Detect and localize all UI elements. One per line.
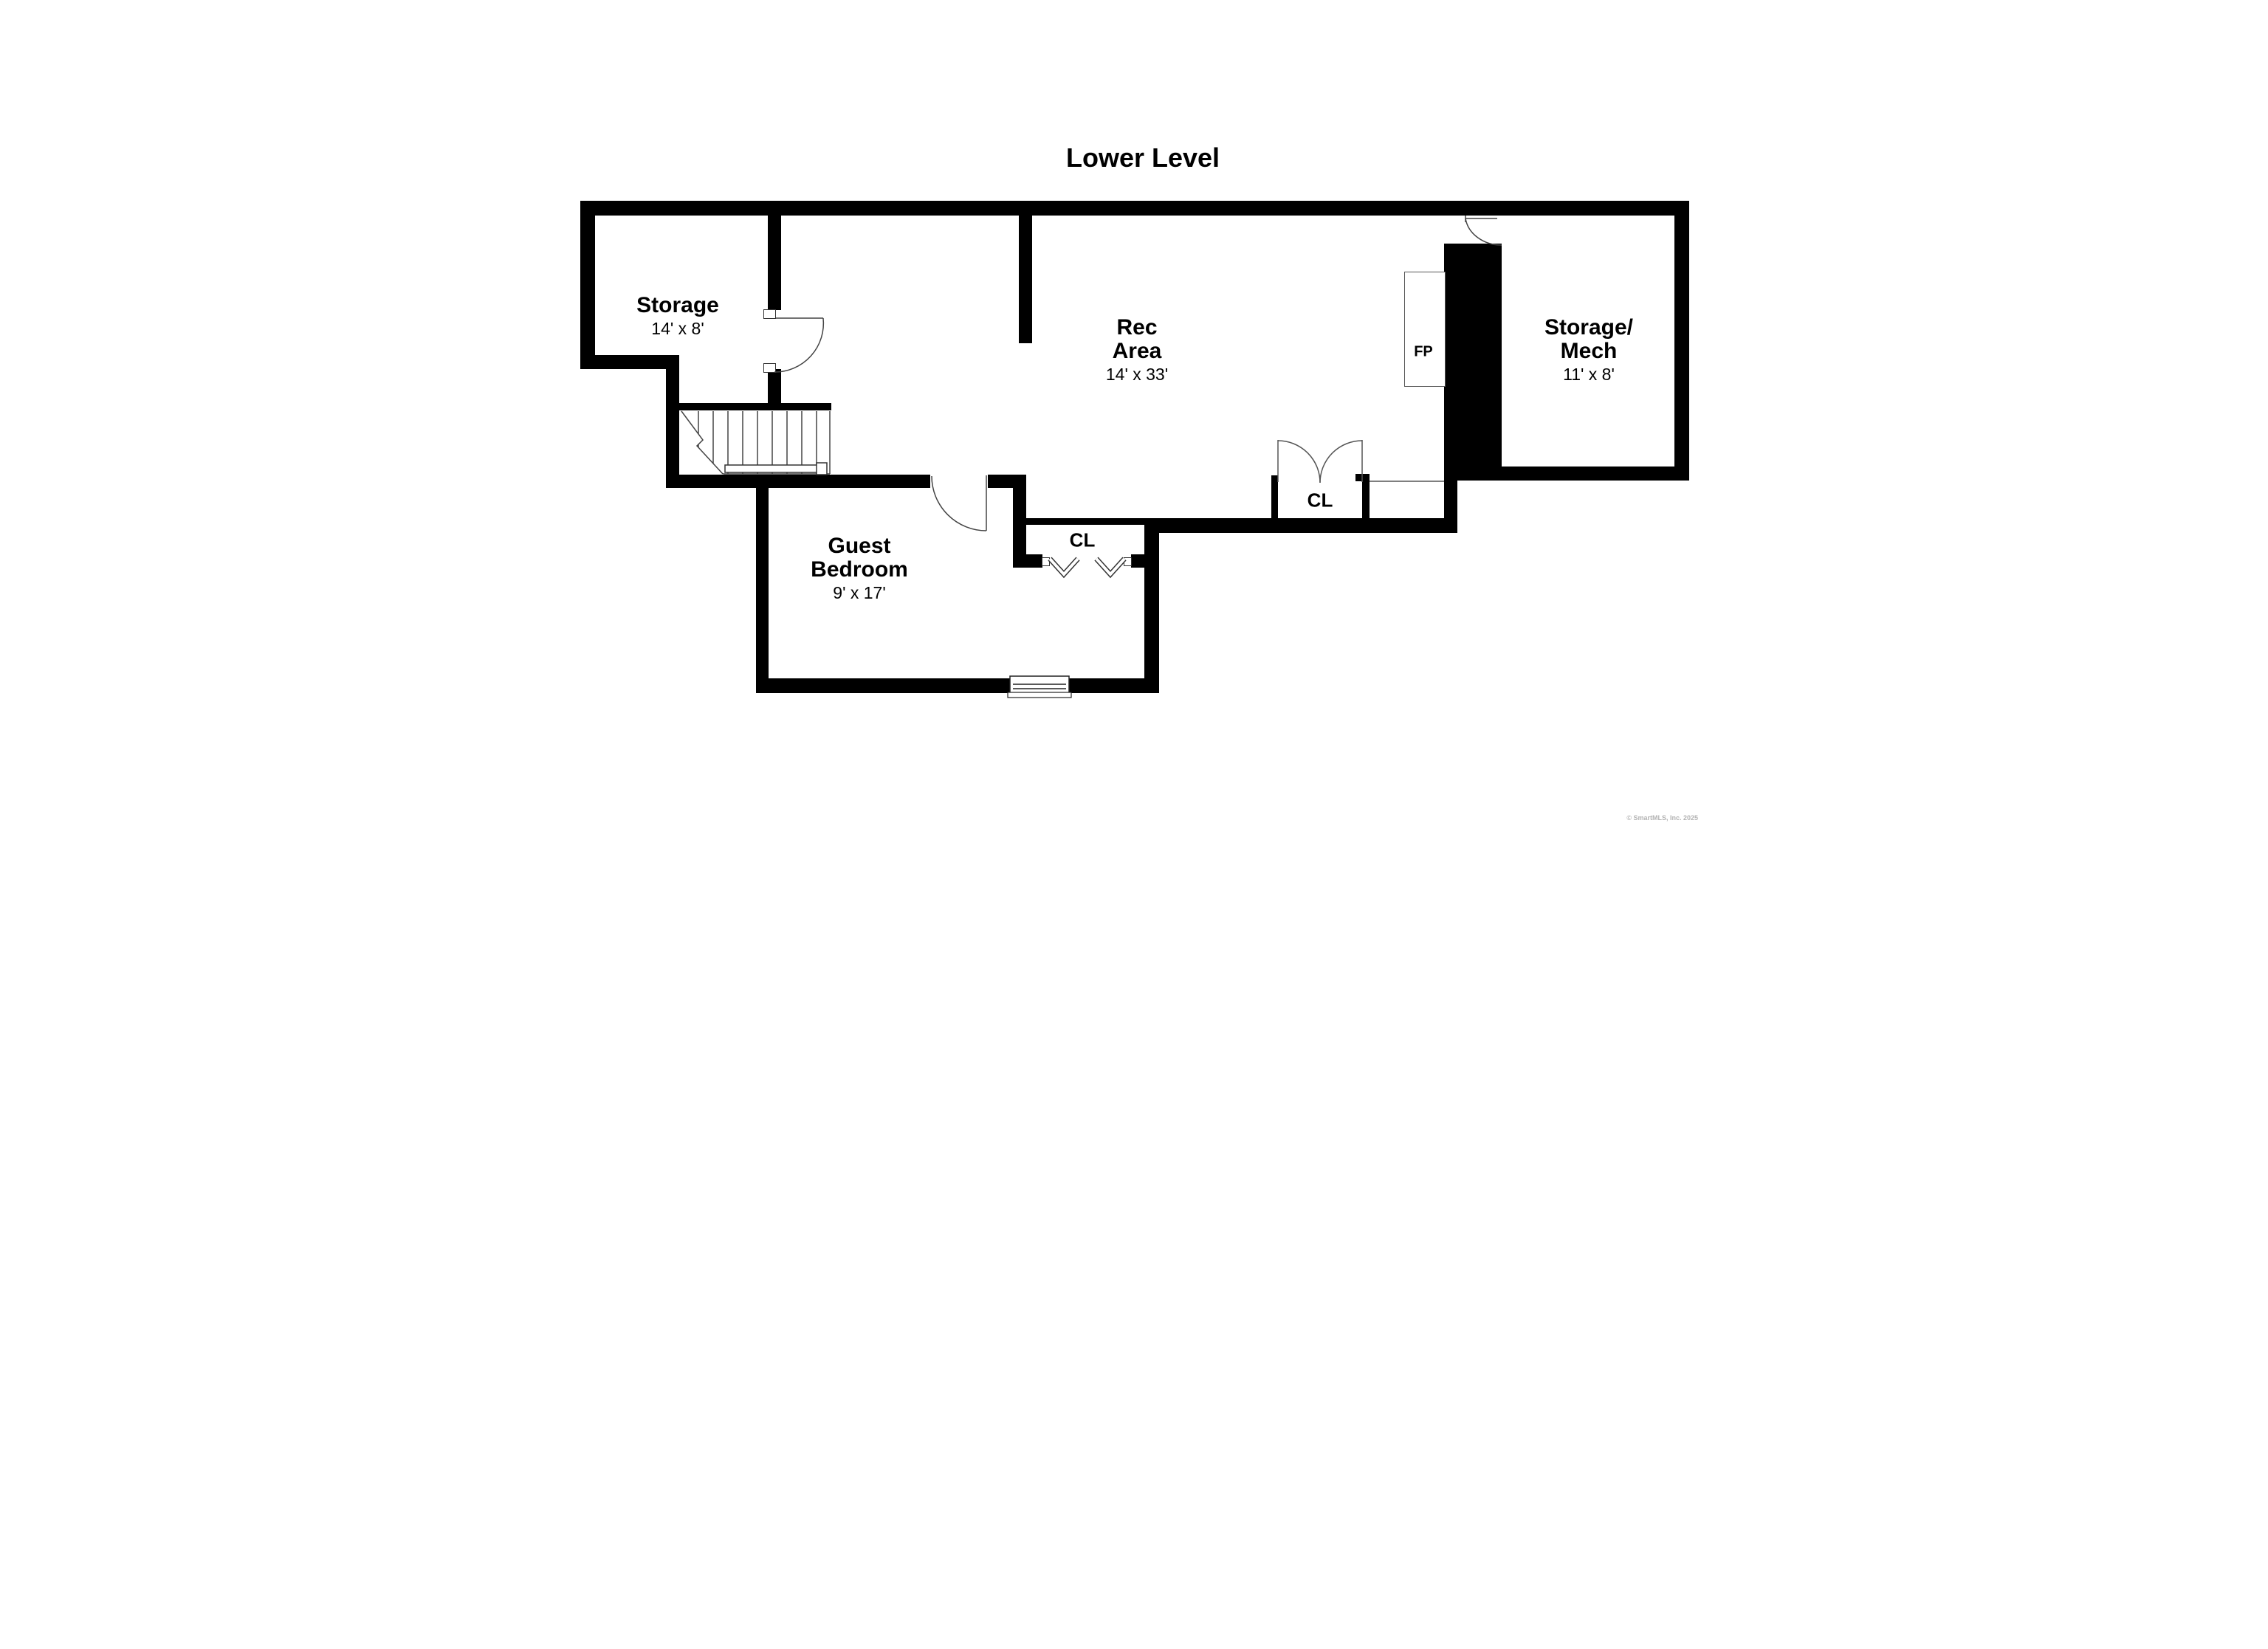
page-title: Lower Level — [1066, 142, 1220, 173]
room-dims: 14' x 33' — [1106, 363, 1168, 385]
closet-label-right: CL — [1307, 489, 1333, 512]
room-name: Storage/ — [1544, 316, 1633, 340]
wall-stair-left — [666, 355, 679, 488]
wall-stair-bottom — [670, 475, 930, 488]
stair-handrail — [725, 463, 827, 475]
door-jamb — [1042, 557, 1050, 566]
wall-stair-top — [670, 403, 831, 410]
fireplace-label: FP — [1414, 344, 1433, 361]
room-name: Storage — [636, 294, 719, 317]
wall-bedroom-door-stub — [988, 475, 1013, 488]
wall-mid-divider — [1019, 216, 1032, 343]
room-label-guest-bedroom: Guest Bedroom 9' x 17' — [811, 534, 908, 604]
wall-rec-bottom — [1144, 518, 1457, 533]
wall-outer-top — [580, 201, 1689, 216]
staircase — [683, 411, 830, 474]
room-label-rec-area: Rec Area 14' x 33' — [1106, 316, 1168, 385]
door-jamb — [1124, 557, 1132, 566]
wall-chimney-descender — [1444, 481, 1457, 533]
room-dims: 9' x 17' — [811, 582, 908, 604]
door-double-closet — [1278, 440, 1362, 483]
wall-bedroom-bottom — [756, 678, 1159, 693]
wall-outer-right — [1674, 216, 1689, 481]
watermark: © SmartMLS, Inc. 2025 — [1626, 814, 1698, 822]
wall-cl-left-stub — [1271, 475, 1278, 518]
room-name: Mech — [1544, 340, 1633, 363]
wall-bifold-right-stub — [1131, 554, 1145, 568]
room-name: Guest — [811, 534, 908, 558]
chimney-mass — [1444, 244, 1502, 481]
wall-bedroom-right — [1144, 518, 1159, 693]
door-jamb — [763, 309, 776, 319]
wall-storage-mech-bottom — [1502, 467, 1689, 481]
wall-storage-right-lower — [768, 369, 781, 410]
wall-bedroom-left — [756, 488, 769, 693]
closet-label-bedroom: CL — [1070, 529, 1096, 552]
door-bifold-right — [1096, 559, 1124, 574]
room-name: Area — [1106, 340, 1168, 363]
room-label-storage-mech: Storage/ Mech 11' x 8' — [1544, 316, 1633, 385]
wall-cl-right-stub-v — [1362, 481, 1370, 518]
floor-plan: Lower Level Storage 14' x 8' Rec Area 14… — [567, 0, 1701, 824]
room-dims: 14' x 8' — [636, 317, 719, 340]
door-bifold-left — [1050, 559, 1078, 574]
stair-break-line — [679, 410, 724, 475]
room-dims: 11' x 8' — [1544, 363, 1633, 385]
wall-storage-right-upper — [768, 216, 781, 310]
room-name: Rec — [1106, 316, 1168, 340]
room-label-storage: Storage 14' x 8' — [636, 294, 719, 340]
wall-outer-left — [580, 216, 595, 369]
fireplace-box — [1404, 272, 1446, 387]
wall-bottom-left — [580, 355, 679, 369]
door-jamb — [763, 363, 776, 373]
wall-bedroom-cl-top — [1022, 518, 1144, 525]
room-name: Bedroom — [811, 558, 908, 582]
door-swing-storage — [774, 318, 823, 372]
door-swing-bedroom — [932, 475, 986, 531]
door-swing-storage-mech — [1465, 216, 1502, 245]
wall-bifold-left-stub — [1013, 554, 1042, 568]
